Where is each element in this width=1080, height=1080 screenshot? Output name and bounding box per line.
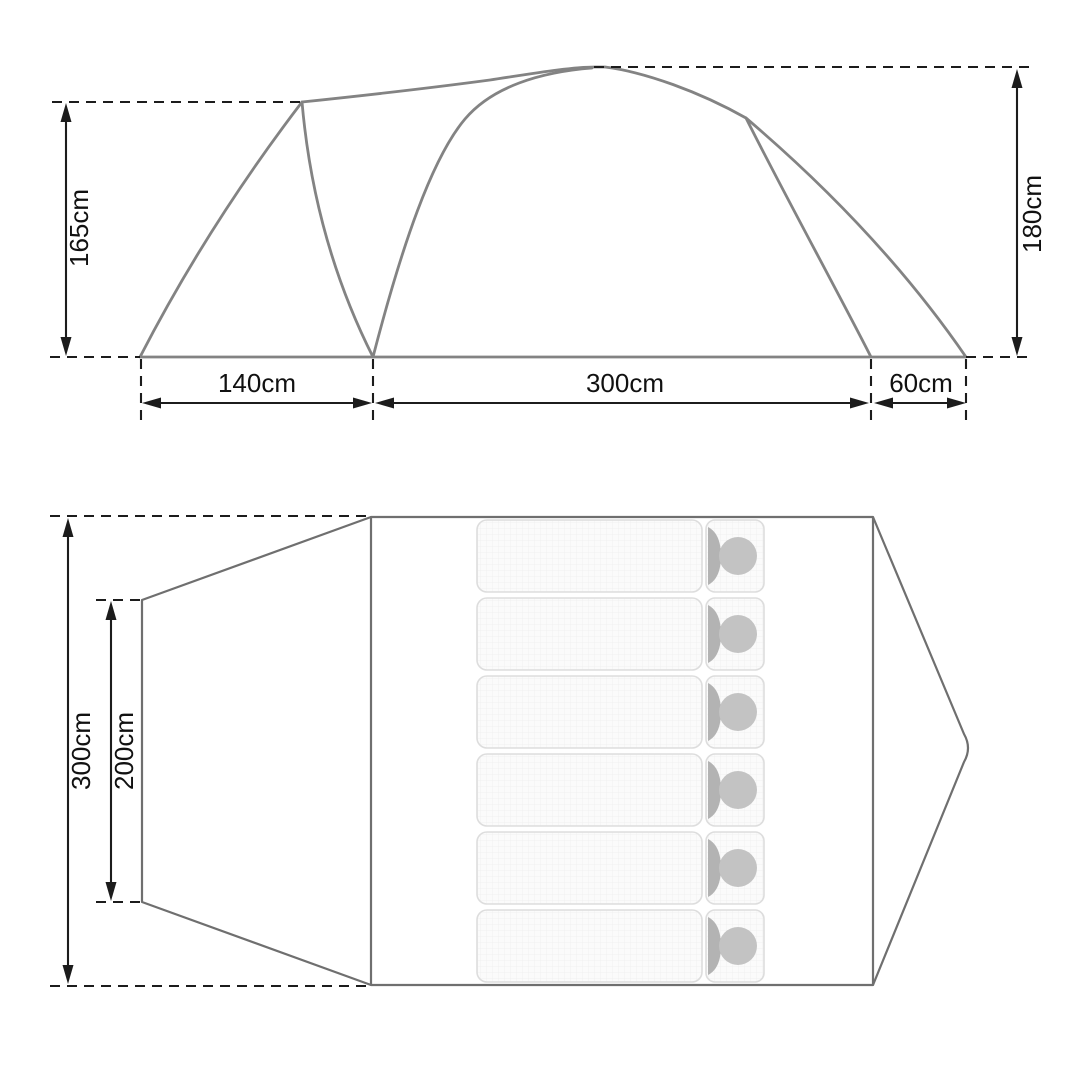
arrowhead-left-icon bbox=[874, 398, 893, 409]
arrowhead-left-icon bbox=[142, 398, 161, 409]
arrowhead-right-icon bbox=[353, 398, 372, 409]
tent-silhouette bbox=[140, 67, 966, 357]
width-front-label: 140cm bbox=[218, 368, 296, 398]
dimension-depth-outer: 300cm bbox=[63, 518, 97, 984]
rear-vestibule-outline bbox=[873, 517, 968, 985]
sleeping-pad bbox=[477, 910, 764, 982]
depth-outer-label: 300cm bbox=[66, 712, 96, 790]
arrowhead-down-icon bbox=[61, 337, 72, 356]
dimension-depth-inner: 200cm bbox=[106, 601, 140, 901]
arrowhead-down-icon bbox=[63, 965, 74, 984]
dimension-width-main: 300cm bbox=[375, 368, 869, 409]
arrowhead-up-icon bbox=[63, 518, 74, 537]
sleeping-pads bbox=[477, 520, 764, 982]
sleeping-pad bbox=[477, 520, 764, 592]
sleeping-mat bbox=[477, 520, 702, 592]
floor-plan: 300cm 200cm bbox=[50, 516, 968, 986]
head-icon bbox=[719, 693, 757, 731]
diagram-svg: 165cm 180cm 140cm 300cm 60cm bbox=[0, 0, 1080, 1080]
width-rear-label: 60cm bbox=[889, 368, 953, 398]
inner-dome-front-edge bbox=[373, 68, 592, 357]
tent-dimension-diagram: 165cm 180cm 140cm 300cm 60cm bbox=[0, 0, 1080, 1080]
arrowhead-down-icon bbox=[1012, 337, 1023, 356]
dimension-width-front: 140cm bbox=[142, 368, 372, 409]
side-view-reference-dashes bbox=[50, 67, 1032, 424]
floor-plan-reference-dashes bbox=[50, 516, 369, 986]
dimension-height-left: 165cm bbox=[61, 103, 95, 356]
height-right-label: 180cm bbox=[1017, 175, 1047, 253]
dimension-height-right: 180cm bbox=[1012, 69, 1048, 356]
sleeping-mat bbox=[477, 832, 702, 904]
sleeping-pad bbox=[477, 598, 764, 670]
head-icon bbox=[719, 849, 757, 887]
width-main-label: 300cm bbox=[586, 368, 664, 398]
front-pole-edge bbox=[302, 102, 373, 357]
arrowhead-down-icon bbox=[106, 882, 117, 901]
head-icon bbox=[719, 537, 757, 575]
tent-interior-lines bbox=[302, 68, 871, 357]
sleeping-mat bbox=[477, 754, 702, 826]
arrowhead-up-icon bbox=[106, 601, 117, 620]
dimension-width-rear: 60cm bbox=[874, 368, 966, 409]
arrowhead-left-icon bbox=[375, 398, 394, 409]
sleeping-pad bbox=[477, 832, 764, 904]
sleeping-pad bbox=[477, 676, 764, 748]
sleeping-mat bbox=[477, 676, 702, 748]
side-view: 165cm 180cm 140cm 300cm 60cm bbox=[50, 67, 1047, 424]
head-icon bbox=[719, 615, 757, 653]
height-left-label: 165cm bbox=[64, 189, 94, 267]
head-icon bbox=[719, 771, 757, 809]
arrowhead-right-icon bbox=[850, 398, 869, 409]
sleeping-pad bbox=[477, 754, 764, 826]
front-vestibule-outline bbox=[142, 517, 371, 985]
head-icon bbox=[719, 927, 757, 965]
inner-dome-rear-edge bbox=[746, 118, 871, 357]
sleeping-mat bbox=[477, 598, 702, 670]
arrowhead-right-icon bbox=[947, 398, 966, 409]
depth-inner-label: 200cm bbox=[109, 712, 139, 790]
arrowhead-up-icon bbox=[1012, 69, 1023, 88]
arrowhead-up-icon bbox=[61, 103, 72, 122]
sleeping-mat bbox=[477, 910, 702, 982]
